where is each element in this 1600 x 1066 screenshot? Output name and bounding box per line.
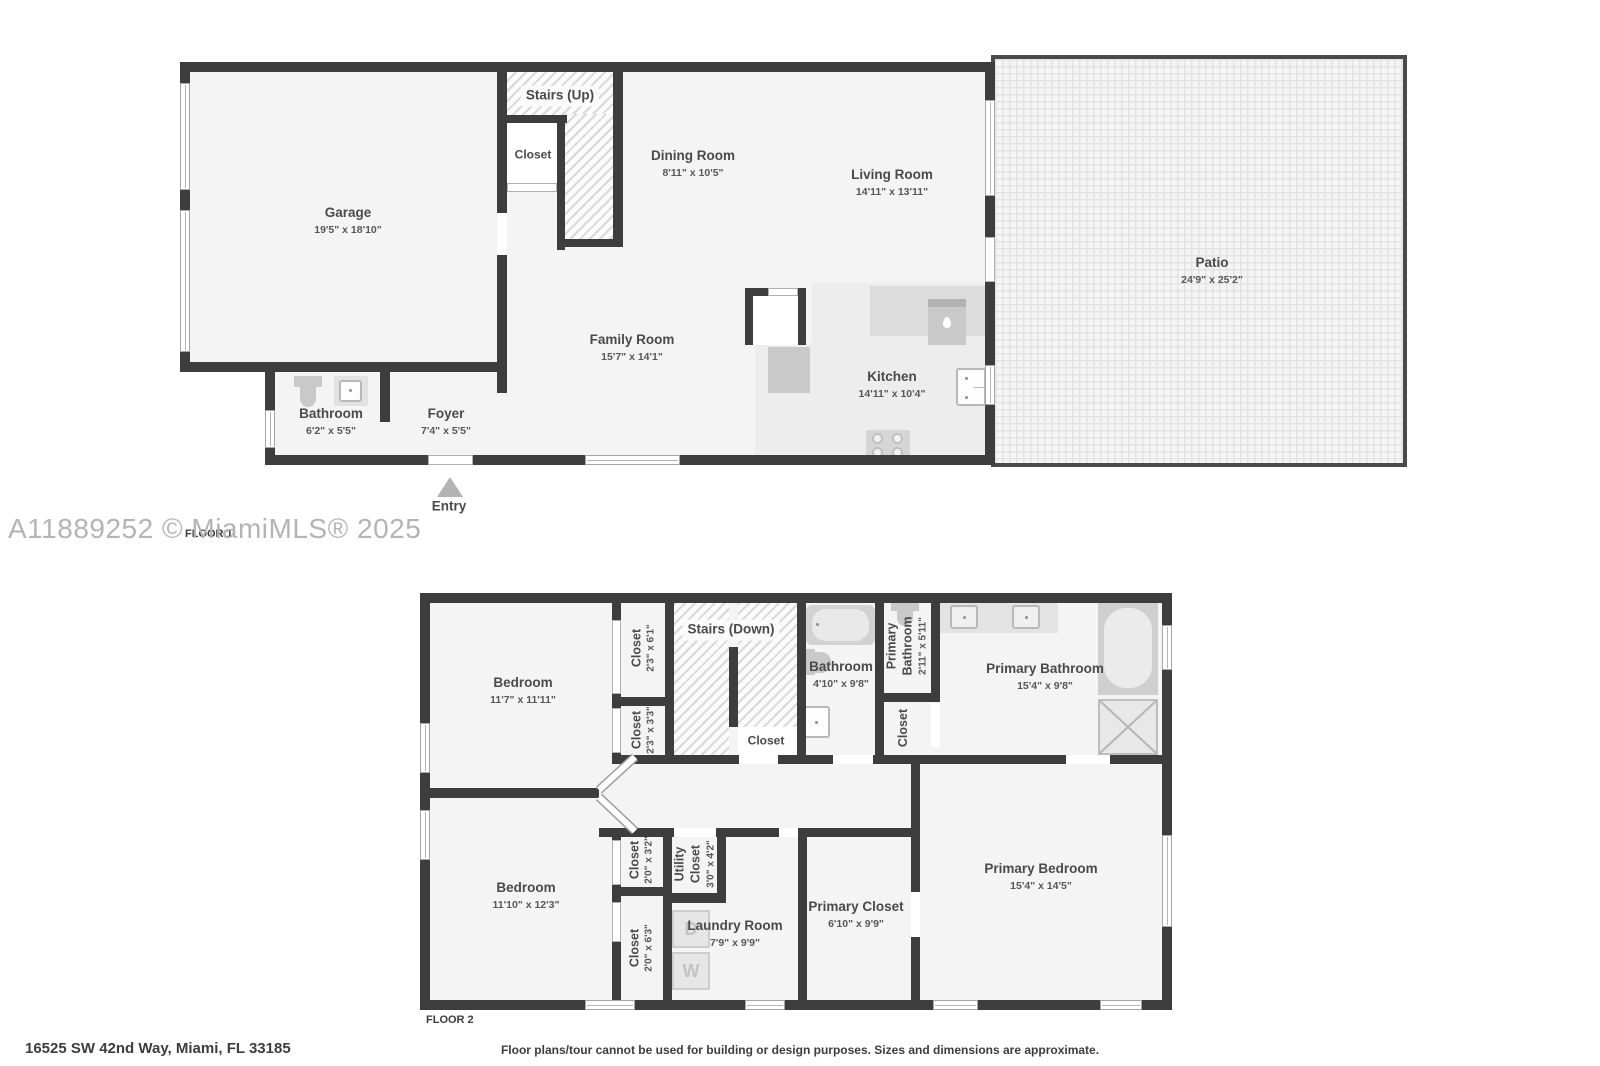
garage-window [180, 83, 190, 190]
room-label-bedroom2: Bedroom11'10" x 12'3" [493, 879, 560, 913]
closet-door [931, 703, 940, 747]
garage-door [497, 213, 507, 255]
wall [911, 937, 920, 1010]
sink-icon [802, 706, 830, 738]
bathroom-door [833, 755, 873, 764]
room-label-bedroom1: Bedroom11'7" x 11'11" [490, 674, 556, 708]
wall [420, 593, 430, 1010]
sink-icon [334, 376, 368, 406]
primary-bathroom-window [1162, 625, 1172, 670]
room-label-bathroom-f1: Bathroom6'2" x 5'5" [299, 405, 363, 439]
wall [797, 593, 806, 764]
kitchen-window [985, 365, 995, 405]
room-label-closet2: Closet2'3" x 3'3" [628, 706, 657, 754]
floor2-tag: FLOOR 2 [426, 1014, 474, 1026]
wall [612, 887, 672, 896]
room-label-primary-bedroom: Primary Bedroom15'4" x 14'5" [984, 860, 1097, 894]
living-room-window [985, 100, 995, 196]
room-label-foyer: Foyer7'4" x 5'5" [421, 405, 471, 439]
room-label-understairs-closet: Closet [748, 733, 785, 750]
understairs-closet-door [739, 755, 778, 764]
bathroom-window [265, 410, 275, 448]
closet-door [507, 183, 557, 192]
wall [875, 693, 940, 702]
wall [557, 115, 565, 193]
closet-door [612, 708, 621, 753]
garage-window [180, 210, 190, 352]
shower-icon [1098, 699, 1158, 755]
kitchen-sink-icon [956, 368, 986, 406]
bedroom-window [420, 723, 430, 773]
wall [931, 593, 940, 702]
closet-door [612, 840, 621, 885]
entry-arrow-icon [437, 477, 463, 497]
fridge-icon [928, 299, 966, 345]
room-label-stairs-down: Stairs (Down) [682, 620, 779, 641]
toilet-icon [294, 376, 322, 387]
room-label-patio: Patio24'9" x 25'2" [1181, 254, 1243, 288]
entry-label: Entry [432, 498, 467, 517]
pantry-door [768, 288, 798, 296]
room-label-bathroom-f2: Bathroom4'10" x 9'8" [809, 658, 873, 692]
primary-closet-door [911, 892, 920, 937]
mls-watermark: A11889252 © MiamiMLS® 2025 [8, 513, 421, 545]
room-label-primary-bathroom: Primary Bathroom15'4" x 9'8" [986, 660, 1104, 694]
primary-bathroom-door [1066, 755, 1110, 764]
room-label-closet1: Closet2'3" x 6'1" [628, 624, 657, 672]
room-label-laundry: Laundry Room7'9" x 9'9" [687, 917, 782, 951]
patio-sliding-door [985, 237, 995, 282]
bathtub-icon [806, 605, 875, 645]
toilet-icon [300, 387, 316, 407]
closet-door [612, 902, 621, 942]
wall [798, 828, 807, 1010]
closet-door [612, 620, 621, 694]
room-label-garage: Garage19'5" x 18'10" [314, 204, 382, 238]
room-label-family: Family Room15'7" x 14'1" [590, 331, 675, 365]
wall [420, 593, 1172, 603]
washer-icon: W [672, 952, 710, 990]
wall [420, 1000, 1172, 1010]
primary-bedroom-window [1162, 835, 1172, 927]
room-label-stairs-up: Stairs (Up) [521, 86, 599, 107]
wall [565, 239, 623, 247]
wall [729, 647, 738, 727]
laundry-door [779, 828, 798, 837]
room-label-kitchen: Kitchen14'11" x 10'4" [859, 368, 926, 402]
room-label-primary-closet: Primary Closet6'10" x 9'9" [808, 898, 903, 932]
bedroom-window [585, 1000, 635, 1010]
bedroom-window [420, 810, 430, 860]
wall [557, 193, 565, 250]
floor-plan-page: Garage19'5" x 18'10" Stairs (Up) Closet … [0, 0, 1600, 1066]
family-room-window [585, 455, 680, 465]
sink-icon [950, 605, 978, 629]
laundry-window [745, 1000, 785, 1010]
property-address: 16525 SW 42nd Way, Miami, FL 33185 [25, 1040, 291, 1057]
bathtub-icon [1098, 603, 1158, 695]
wall [420, 788, 599, 798]
primary-bedroom-window [1100, 1000, 1142, 1010]
wall [613, 62, 623, 247]
disclaimer-text: Floor plans/tour cannot be used for buil… [501, 1043, 1099, 1057]
wall [665, 593, 674, 764]
wall [911, 755, 920, 892]
counter-icon [768, 347, 810, 393]
room-label-closet3: Closet2'0" x 3'2" [626, 836, 655, 884]
wall [180, 362, 507, 372]
sink-icon [1012, 605, 1040, 629]
room-label-closet5: Closet [895, 709, 911, 747]
room-label-primary-bathroom-small: Primary Bathroom2'11" x 5'11" [883, 598, 929, 694]
wall [180, 62, 995, 72]
room-label-living: Living Room14'11" x 13'11" [851, 166, 933, 200]
room-label-closet-f1: Closet [515, 147, 552, 164]
room-label-dining: Dining Room8'11" x 10'5" [651, 147, 735, 181]
wall [717, 828, 726, 903]
entry-door [428, 455, 473, 465]
room-label-utility-closet: Utility Closet3'0" x 4'2" [671, 831, 717, 897]
room-label-closet4: Closet2'0" x 6'3" [626, 924, 655, 972]
primary-bedroom-window [933, 1000, 978, 1010]
wall [380, 372, 390, 422]
wall [497, 372, 507, 393]
